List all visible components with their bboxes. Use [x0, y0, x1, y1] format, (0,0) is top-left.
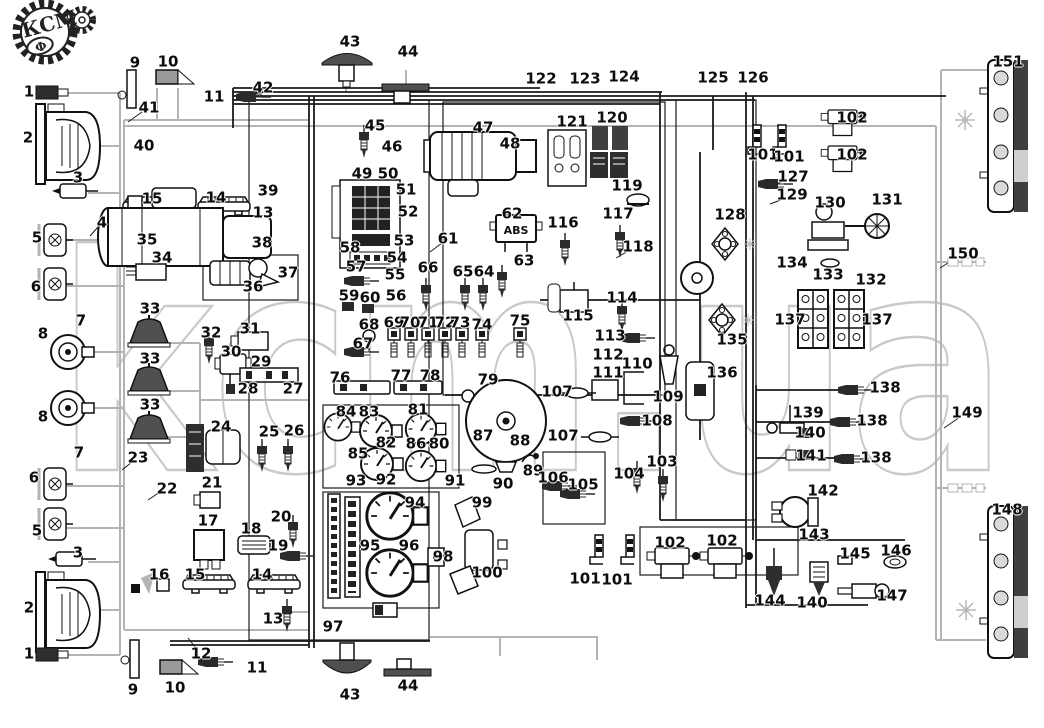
- plug-140-top: [798, 428, 812, 438]
- connector-strip-95: [345, 497, 360, 597]
- bracket-lamp-9-bottom: [121, 640, 139, 678]
- plug-connector-1-bottom: [36, 648, 68, 661]
- lamp-119: [627, 194, 649, 206]
- resistor-18: [238, 536, 270, 554]
- ignition-switch-16: [131, 572, 169, 594]
- plug-144: [766, 548, 782, 596]
- plug-13-bottom: [282, 599, 292, 632]
- battery-pack-right: [834, 290, 864, 348]
- battery-pack-left: [798, 290, 828, 348]
- repeater-lamp-10-top: [156, 70, 194, 84]
- inline-145: [838, 556, 852, 564]
- sensor-127: [758, 179, 793, 189]
- solenoid-valve-102a: [647, 548, 700, 578]
- connector-101d: [773, 125, 786, 154]
- valve-147: [838, 584, 889, 598]
- lamp-146: [884, 556, 906, 568]
- inline-connector-90: [472, 465, 496, 473]
- plug-141: [786, 450, 812, 460]
- headlamp-left-top: [36, 104, 100, 184]
- fuse-relay-block: [332, 180, 400, 268]
- plug-140-bottom: [810, 562, 828, 596]
- lamp-bar-15-bottom: [183, 575, 235, 593]
- repeater-lamp-10-bottom: [160, 660, 198, 674]
- fuse-box-98: [428, 548, 444, 566]
- plug-connector-1-top: [36, 86, 68, 99]
- sidelamp-3-bottom: [48, 552, 96, 566]
- generator-47-48: [424, 132, 536, 196]
- tachometer-96: [367, 550, 428, 596]
- inline-fuse-133: [821, 259, 839, 267]
- wiring-diagram-canvas: kcm.ua КСМ Ф: [0, 0, 1044, 728]
- switch-box-97: [373, 603, 397, 617]
- connector-strip-93: [328, 494, 340, 598]
- solenoid-valve-102b: [700, 548, 753, 578]
- connector-101c: [748, 125, 761, 154]
- diagram-artwork: kcm.ua КСМ Ф: [0, 0, 1044, 728]
- connector-bar-29: [240, 368, 298, 382]
- burst-icon: [955, 110, 975, 130]
- lamp-bar-14-bottom: [248, 575, 300, 593]
- relay-box-17: [194, 530, 224, 569]
- dome-lamp-43-top: [322, 54, 372, 88]
- gray-connector-chain-bottom: [948, 484, 984, 492]
- box-111: [592, 380, 618, 400]
- headlamp-left-bottom: [36, 572, 100, 652]
- tail-lamp-151: [980, 60, 1028, 212]
- abs-label: ABS: [504, 224, 529, 237]
- plug-11-bottom: [198, 657, 233, 667]
- gray-connector-chain-top: [948, 258, 984, 266]
- connector-bars-76-78: [334, 381, 442, 394]
- marker-44-bottom: [384, 659, 431, 676]
- motor-between-flanges: [681, 262, 713, 294]
- solenoid-valve-102d: [821, 146, 866, 172]
- relay-group-120-121: [548, 126, 628, 186]
- spark-plug-45: [359, 125, 369, 158]
- kcm-logo: КСМ Ф: [17, 4, 93, 60]
- solenoid-valve-102c: [821, 110, 866, 136]
- filter-136: [686, 362, 714, 420]
- tail-lamp-148: [980, 506, 1028, 658]
- dome-lamp-43-bottom: [323, 643, 371, 673]
- burst-icon: [956, 600, 976, 620]
